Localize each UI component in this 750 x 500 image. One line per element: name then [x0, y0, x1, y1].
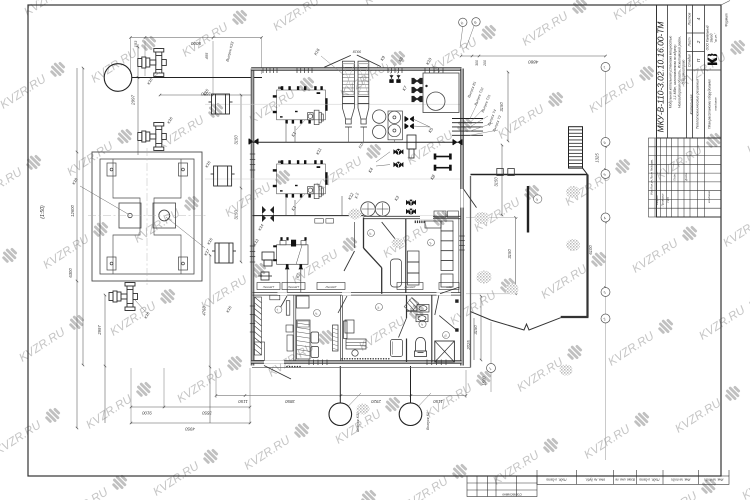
- svg-text:Взам. инв. №: Взам. инв. №: [615, 478, 635, 482]
- svg-text:5000: 5000: [190, 41, 201, 46]
- svg-text:9918: 9918: [352, 50, 361, 54]
- svg-text:Формат: Формат: [725, 13, 729, 27]
- svg-text:Согласовано: Согласовано: [502, 493, 522, 497]
- svg-text:455: 455: [204, 52, 209, 59]
- svg-text:2: 2: [696, 40, 701, 44]
- svg-text:1,1 МВт, изготовленная по адре: 1,1 МВт, изготовленная по адресу:: [673, 44, 677, 100]
- svg-text:Стадия: Стадия: [688, 54, 692, 67]
- svg-text:12600: 12600: [70, 205, 75, 217]
- svg-text:1150: 1150: [238, 399, 248, 404]
- svg-text:Изм.Кол.уч.Лист №докум.: Изм.Кол.уч.Лист №докум.: [650, 159, 654, 195]
- svg-text:Теплотехнические решения: Теплотехнические решения: [696, 79, 700, 130]
- svg-text:д. Бурмистрово: д. Бурмистрово: [682, 59, 686, 84]
- svg-text:4950: 4950: [185, 426, 195, 431]
- svg-text:4: 4: [696, 17, 701, 20]
- svg-text:Разраб.: Разраб.: [655, 195, 659, 205]
- svg-text:План расстановки оборудования: План расстановки оборудования: [708, 79, 712, 129]
- svg-text:кладовая: кладовая: [714, 97, 718, 110]
- svg-text:3150: 3150: [494, 177, 499, 187]
- svg-text:3150: 3150: [499, 102, 504, 112]
- svg-text:"гр.уп.": "гр.уп.": [714, 32, 718, 43]
- svg-text:Выпуск К31: Выпуск К31: [356, 412, 360, 432]
- svg-text:Инв. № подл.: Инв. № подл.: [703, 478, 723, 482]
- svg-text:3150: 3150: [507, 249, 512, 259]
- svg-text:3150: 3150: [234, 135, 239, 145]
- svg-text:300: 300: [475, 60, 479, 66]
- svg-text:Котельная.: Котельная.: [690, 94, 694, 115]
- svg-text:ЛмгкШТ: ЛмгкШТ: [403, 285, 415, 289]
- svg-text:ЛмгкШТ: ЛмгкШТ: [287, 285, 299, 289]
- svg-text:Лист: Лист: [688, 37, 692, 47]
- svg-text:Дата: Дата: [684, 173, 688, 182]
- svg-text:3850: 3850: [285, 399, 295, 404]
- svg-text:2997: 2997: [97, 325, 102, 336]
- svg-text:Выпуск К1: Выпуск К1: [426, 412, 430, 430]
- svg-text:9100: 9100: [142, 410, 152, 415]
- svg-text:Подп. и дата: Подп. и дата: [546, 478, 566, 482]
- svg-text:6300: 6300: [68, 268, 73, 278]
- svg-text:200: 200: [483, 60, 487, 67]
- svg-text:1150: 1150: [433, 399, 443, 404]
- svg-text:2997: 2997: [131, 94, 136, 106]
- svg-text:Инв. № дубл.: Инв. № дубл.: [585, 478, 605, 482]
- svg-text:Листов: Листов: [688, 12, 692, 26]
- svg-text:3150: 3150: [234, 210, 239, 220]
- svg-text:Проверил: Проверил: [661, 193, 665, 206]
- svg-text:4880: 4880: [528, 59, 539, 64]
- svg-text:Подп.: Подп.: [673, 173, 677, 181]
- svg-text:Новосибирская область, Искитим: Новосибирская область, Искитимский район…: [677, 36, 681, 108]
- svg-text:1325: 1325: [595, 153, 600, 163]
- svg-text:ЛмгкШТ: ЛмгкШТ: [262, 285, 274, 289]
- svg-text:МКУ-В-110-3.02.10.16.00-ТМ: МКУ-В-110-3.02.10.16.00-ТМ: [656, 22, 666, 133]
- svg-text:Инв. № подл.: Инв. № подл.: [670, 478, 690, 482]
- svg-text:6100: 6100: [588, 245, 593, 255]
- svg-text:2920: 2920: [371, 399, 382, 404]
- svg-text:(1:50): (1:50): [40, 205, 46, 219]
- svg-text:ГИП: ГИП: [666, 196, 670, 203]
- svg-text:Подп. и дата: Подп. и дата: [639, 478, 659, 482]
- svg-text:ЛмгкШТ: ЛмгкШТ: [324, 285, 336, 289]
- svg-text:Модульная котельная установка: Модульная котельная установка мощностью: [669, 35, 673, 108]
- svg-text:кладовая: кладовая: [707, 190, 711, 203]
- svg-text:1500: 1500: [482, 376, 487, 386]
- svg-text:3550: 3550: [202, 410, 212, 415]
- svg-text:4763: 4763: [202, 306, 207, 316]
